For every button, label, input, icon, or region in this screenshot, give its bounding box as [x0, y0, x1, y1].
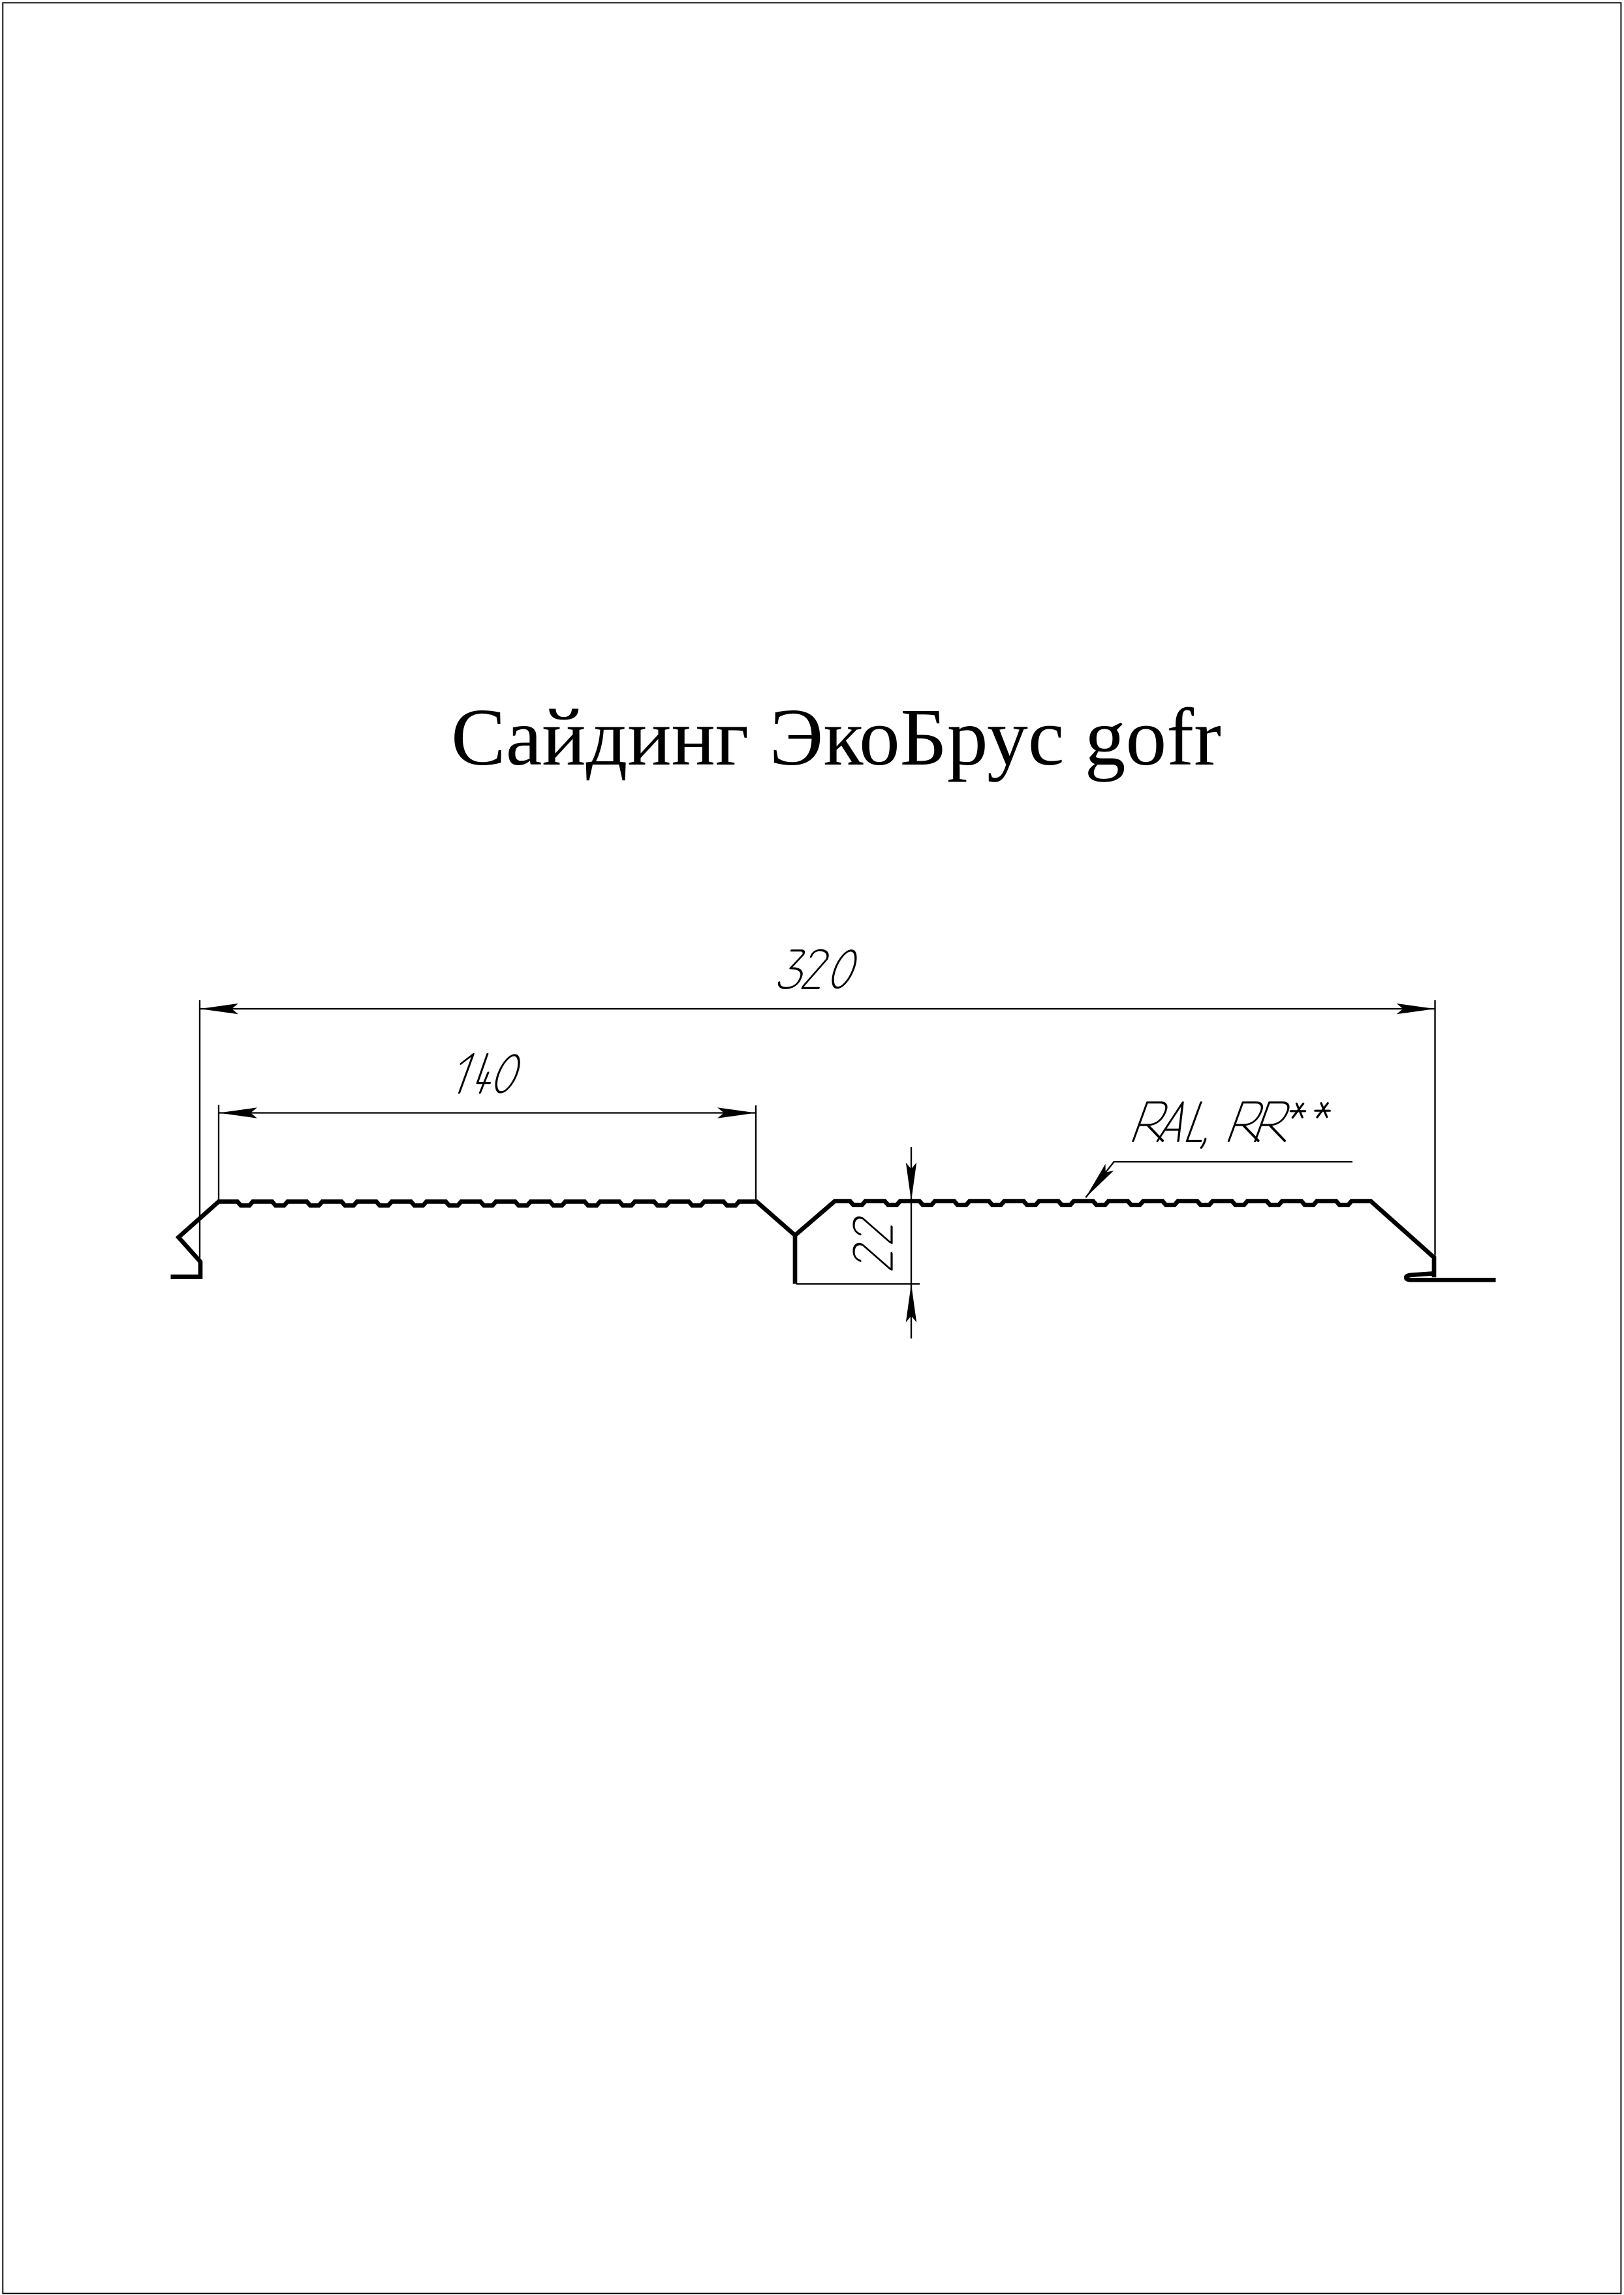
svg-text:Сайдинг ЭкоБрус gofr: Сайдинг ЭкоБрус gofr	[451, 692, 1221, 783]
